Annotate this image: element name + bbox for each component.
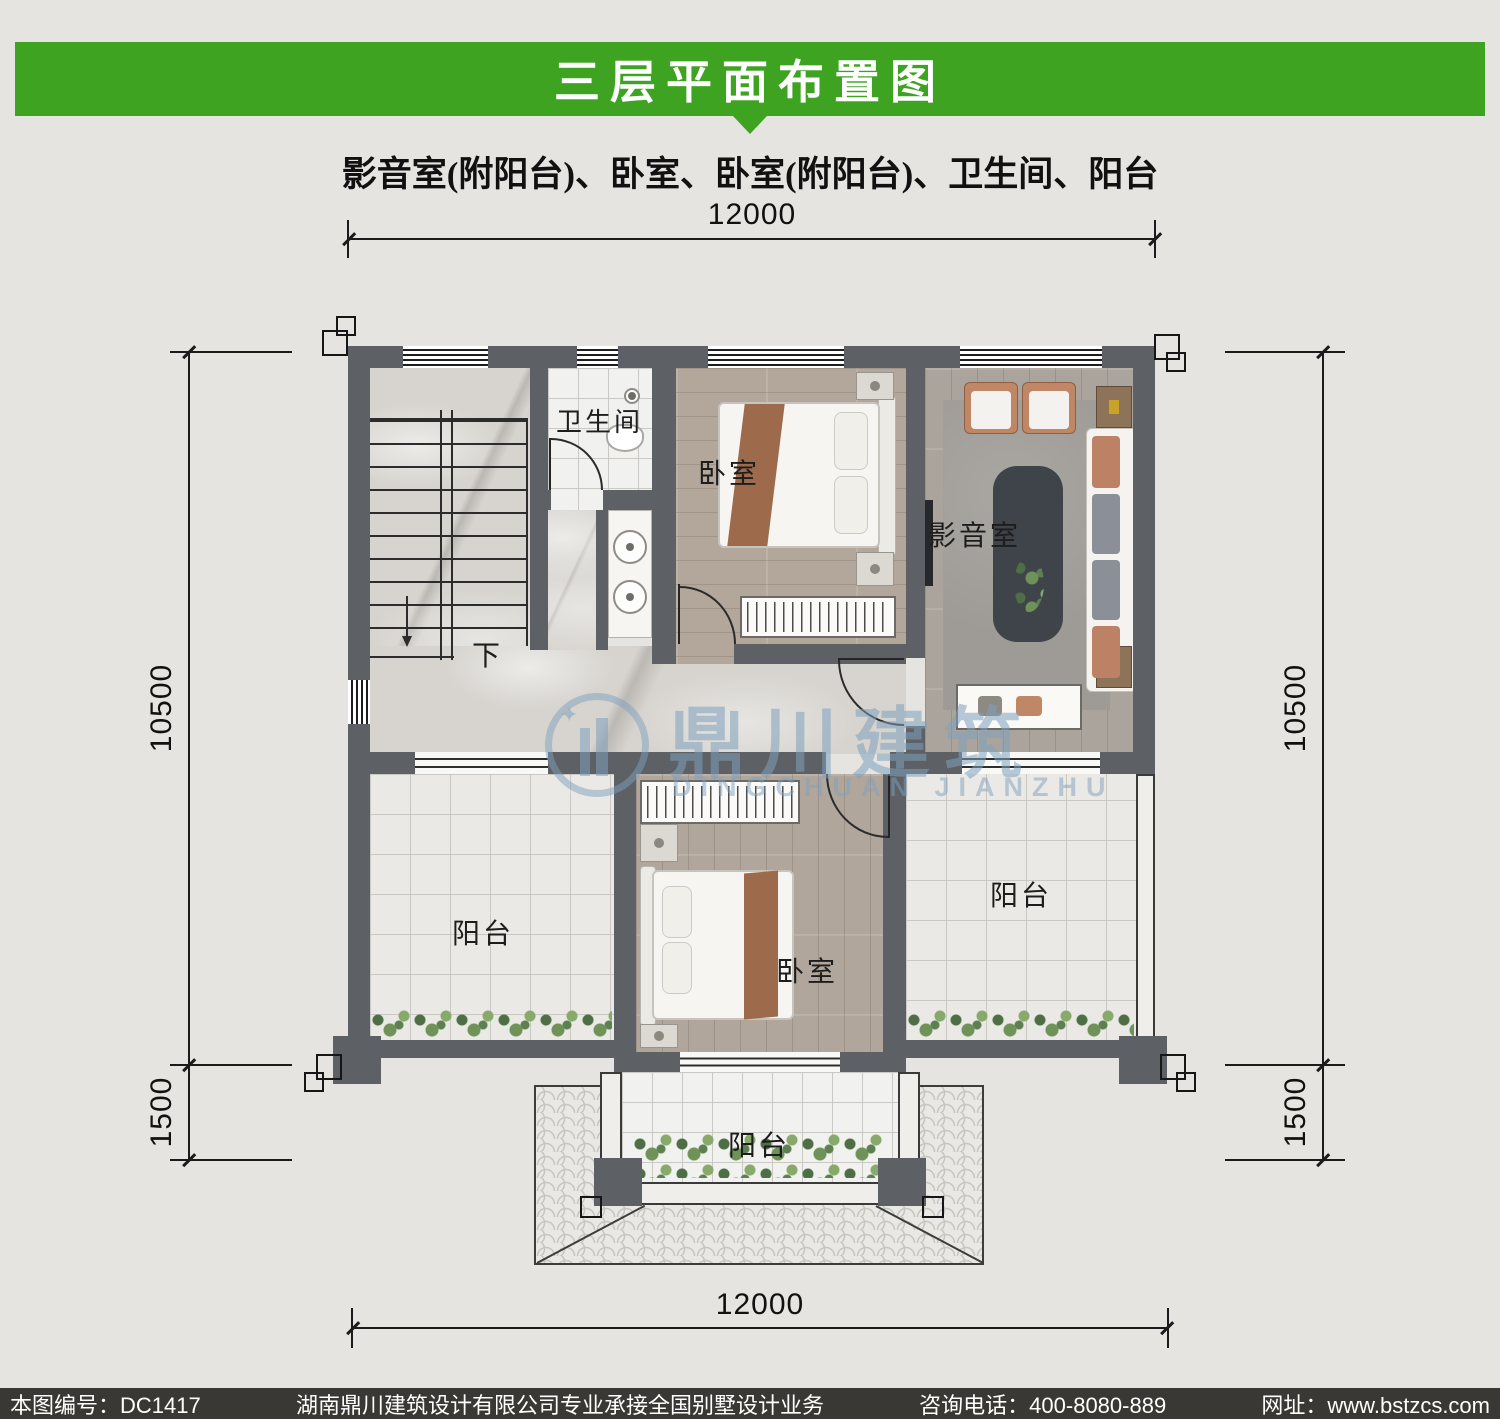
wall-middle-2 (548, 752, 614, 774)
wall-media-west-lower (906, 726, 925, 752)
plan-subtitle: 影音室(附阳台)、卧室、卧室(附阳台)、卫生间、阳台 (0, 146, 1500, 197)
room-label-balcony-bottom: 阳台 (728, 1124, 790, 1164)
stair-center-rail (440, 410, 453, 660)
sink-1 (613, 530, 647, 564)
media-table-plant (1014, 556, 1044, 612)
room-label-balcony-left: 阳台 (452, 912, 514, 952)
dim-top-label: 12000 (348, 198, 1156, 232)
footer-company: 湖南鼎川建筑设计有限公司专业承接全国别墅设计业务 (296, 1388, 824, 1419)
floor-corridor-patch (548, 510, 596, 650)
nightstand-top-2 (856, 552, 894, 586)
cabinet-deco-1 (978, 696, 1002, 716)
sofa-cushion-3 (1092, 560, 1120, 620)
sofa-cushion-2 (1092, 494, 1120, 554)
media-coffee-table (993, 466, 1063, 642)
stair-arrow-shaft (406, 596, 408, 636)
wall-middle-3 (890, 752, 962, 774)
corner-ornament-top-right-2 (1166, 352, 1186, 372)
window-top-4 (960, 346, 1102, 368)
corner-ornament-top-left-2 (336, 316, 356, 336)
media-armchair-1 (964, 382, 1018, 434)
dim-left-line (188, 352, 190, 1160)
bed-top-headboard (878, 396, 896, 556)
planter-balcony-right (908, 1008, 1134, 1040)
dim-bottom-line (352, 1327, 1168, 1329)
slider-balcony-bottom (680, 1052, 840, 1072)
wall-bedroom-bottom-south-right (840, 1052, 906, 1072)
dim-top-line (348, 238, 1156, 240)
footer-website: 网址：www.bstzcs.com (1261, 1388, 1490, 1419)
corner-ornament-bottom-left-2 (304, 1072, 324, 1092)
footer-phone: 咨询电话：400-8080-889 (919, 1388, 1166, 1419)
sink-2 (613, 580, 647, 614)
bed-bottom-pillow-1 (662, 886, 692, 938)
wall-right (1133, 346, 1155, 774)
wall-bathroom-south-right (603, 490, 658, 510)
page-title: 三层平面布置图 (554, 46, 946, 112)
wall-bathroom-bedroom (652, 368, 676, 664)
sofa-cushion-4 (1092, 626, 1120, 678)
bed-bottom-pillow-2 (662, 942, 692, 994)
nightstand-bottom-2 (640, 1024, 678, 1048)
nightstand-bottom-1 (640, 824, 678, 862)
wardrobe-bedroom-top (740, 596, 896, 638)
dim-bottom-label: 12000 (352, 1288, 1168, 1322)
dim-right-lower-label: 1500 (1279, 1077, 1313, 1148)
slider-balcony-right (962, 752, 1100, 774)
bed-bottom-throw (744, 871, 778, 1020)
stair-arrow-down-icon (402, 636, 412, 647)
floor-plan-page: 三层平面布置图 影音室(附阳台)、卧室、卧室(附阳台)、卫生间、阳台 (0, 0, 1500, 1419)
corner-ornament-bottom-right-2 (1176, 1072, 1196, 1092)
room-label-media-room: 影音室 (928, 514, 1021, 554)
dim-left-lower-label: 1500 (145, 1077, 179, 1148)
room-label-bedroom-top: 卧室 (698, 452, 760, 492)
wall-bedroom-bottom-west (614, 774, 636, 1072)
slider-balcony-left (415, 752, 548, 774)
wall-bathroom-south-left (530, 490, 551, 510)
planter-balcony-left (372, 1008, 612, 1040)
bed-top-pillow-1 (834, 412, 868, 470)
wall-media-west-upper (906, 368, 925, 658)
footer-bar: 本图编号：DC1417 湖南鼎川建筑设计有限公司专业承接全国别墅设计业务 咨询电… (0, 1388, 1500, 1419)
wall-middle-corner (1100, 752, 1155, 774)
wall-sink-side (596, 510, 608, 650)
nightstand-top-1 (856, 372, 894, 400)
ornament-pillar-bottom-right (922, 1196, 944, 1218)
banner-pointer-icon (733, 116, 767, 134)
dim-right-ext-1 (1225, 351, 1345, 353)
ornament-pillar-bottom-left (580, 1196, 602, 1218)
window-left-wall (348, 680, 370, 724)
room-label-bathroom: 卫生间 (556, 402, 643, 439)
dim-right-ext-3 (1225, 1159, 1345, 1161)
wardrobe-bedroom-bottom (640, 780, 800, 824)
window-top-2 (577, 346, 618, 368)
room-label-balcony-right: 阳台 (990, 874, 1052, 914)
room-label-bedroom-bottom: 卧室 (776, 950, 838, 990)
media-armchair-2 (1022, 382, 1076, 434)
window-top-1 (403, 346, 488, 368)
sofa-cushion-1 (1092, 436, 1120, 488)
cabinet-deco-2 (1016, 696, 1042, 716)
room-label-stairs-down: 下 (472, 634, 503, 674)
pillar-balcony-bottom-right (878, 1158, 926, 1206)
dim-left-upper-label: 10500 (145, 664, 179, 752)
dim-right-ext-2 (1225, 1064, 1345, 1066)
dim-right-line (1322, 352, 1324, 1160)
window-top-3 (708, 346, 844, 368)
parapet-balcony-right (906, 1040, 1155, 1058)
door-bedroom-bottom-leaf (888, 774, 890, 838)
parapet-balcony-right-east (1136, 774, 1155, 1040)
stair-bottom-line (366, 656, 454, 658)
media-side-table-1 (1096, 386, 1132, 428)
footer-plan-number: 本图编号：DC1417 (10, 1388, 201, 1419)
dim-right-upper-label: 10500 (1279, 664, 1313, 752)
bed-top-pillow-2 (834, 476, 868, 534)
wall-middle-1 (348, 752, 415, 774)
wall-balcony-bottom-south (600, 1182, 920, 1205)
title-banner: 三层平面布置图 (15, 42, 1485, 116)
floor-balcony-left (370, 774, 614, 1040)
parapet-balcony-left (348, 1040, 636, 1058)
wall-bedroom-bottom-north (614, 752, 826, 774)
